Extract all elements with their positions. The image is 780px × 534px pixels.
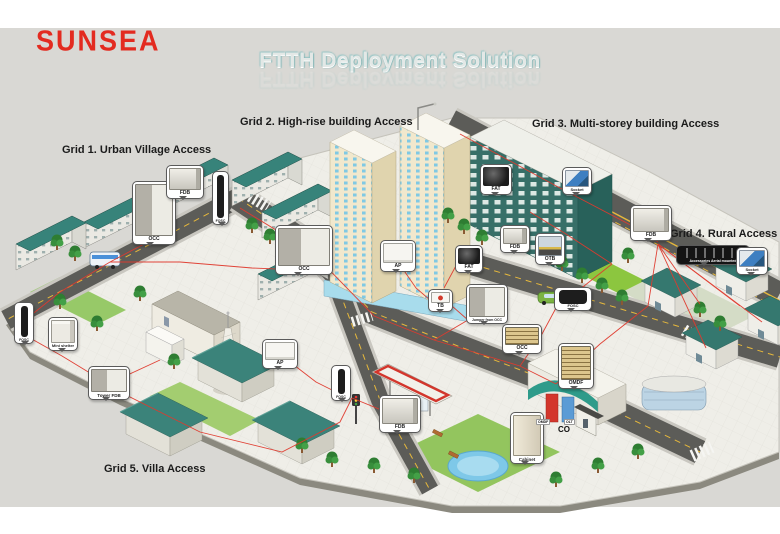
fat-1-label: FAT — [464, 265, 473, 271]
fdb-4-label: FDB — [395, 425, 405, 431]
poster-title-block: FTTH Deployment Solution FTTH Deployment… — [250, 50, 550, 90]
callout-socket-1: Socket — [562, 167, 592, 195]
cabinet-1-label: Cabinet — [519, 457, 536, 462]
jumper-1-label: Jumper from OCC — [472, 318, 502, 322]
aerial-1-label: Accessories Aerial mounted — [690, 259, 737, 263]
otb-1-label: OTB — [545, 257, 556, 263]
fosc-3-label: FOSC — [19, 338, 29, 342]
fdb-3-label: FDB — [646, 233, 656, 239]
callout-ap-2: AP — [262, 339, 298, 369]
scene-label-omdf: OMDF — [536, 419, 550, 425]
callout-socket-2: Socket — [736, 247, 768, 275]
callout-fosc-4: FOSC — [331, 365, 351, 401]
poster-title-reflection: FTTH Deployment Solution — [250, 69, 550, 90]
socket-1-device-image — [565, 170, 589, 187]
mini-shelter-device-image — [51, 320, 75, 343]
occ-2-label: OCC — [298, 267, 309, 273]
socket-1-label: Socket — [570, 188, 583, 193]
callout-otb-1: OTB — [535, 233, 565, 265]
ftth-poster-page: { "logo": { "text": "SUNSEA", "color": "… — [0, 0, 780, 534]
fosc-4-label: FOSC — [336, 395, 346, 399]
callout-ap-1: AP — [380, 240, 416, 272]
callout-mini-shelter: Mini shelter — [48, 317, 78, 351]
grid-label-grid3: Grid 3. Multi-storey building Access — [532, 118, 719, 130]
callout-tower-fdb: Tower FDB — [88, 366, 130, 400]
sunsea-logo: SUNSEA — [36, 25, 161, 58]
tb-1-label: TB — [437, 304, 444, 310]
mini-shelter-label: Mini shelter — [52, 344, 74, 349]
blue-office-building — [642, 376, 706, 410]
tower-fdb-label: Tower FDB — [97, 393, 120, 398]
socket-2-label: Socket — [745, 268, 758, 273]
callout-fat-1: FAT — [455, 245, 483, 273]
ap-1-label: AP — [395, 264, 402, 270]
fat-2-label: FAT — [491, 187, 500, 193]
scene-label-co: CO — [558, 425, 570, 434]
callout-fdb-2: FDB — [500, 225, 530, 253]
callout-fosc-1: FOSC — [212, 171, 229, 225]
occ-2-device-image — [278, 228, 330, 266]
callout-occ-3: OCC — [502, 324, 542, 354]
ap-1-device-image — [383, 243, 413, 263]
omdf-1-label: OMDF — [569, 381, 584, 387]
grid-label-grid1: Grid 1. Urban Village Access — [62, 144, 211, 156]
fdb-2-device-image — [503, 228, 527, 244]
grid-label-grid4: Grid 4. Rural Access — [670, 228, 777, 240]
callout-jumper-1: Jumper from OCC — [466, 284, 508, 324]
scene-label-olt: OLT — [564, 419, 575, 425]
ap-2-label: AP — [277, 361, 284, 367]
otb-1-device-image — [538, 236, 562, 256]
callout-tb-1: TB — [428, 289, 453, 312]
socket-2-device-image — [739, 250, 765, 267]
tower-fdb-device-image — [91, 369, 127, 392]
fosc-2-device-image — [559, 290, 587, 304]
ap-2-device-image — [265, 342, 295, 360]
tb-1-device-image — [431, 292, 450, 303]
fosc-4-device-image — [338, 369, 345, 394]
jumper-1-device-image — [469, 287, 505, 317]
fdb-2-label: FDB — [510, 245, 520, 251]
fat-2-device-image — [483, 167, 509, 186]
occ-3-device-image — [505, 327, 539, 345]
fdb-4-device-image — [382, 398, 418, 424]
fosc-1-label: FOSC — [216, 219, 226, 223]
callout-fdb-4: FDB — [379, 395, 421, 433]
fdb-1-label: FDB — [180, 191, 190, 197]
fdb-3-device-image — [633, 208, 669, 232]
callout-fosc-2: FOSC — [554, 287, 592, 311]
occ-1-label: OCC — [148, 237, 159, 243]
fosc-3-device-image — [21, 306, 28, 337]
callout-occ-2: OCC — [275, 225, 333, 275]
grid-label-grid5: Grid 5. Villa Access — [104, 463, 206, 475]
fat-1-device-image — [458, 248, 480, 264]
fosc-1-device-image — [217, 175, 224, 218]
fdb-1-device-image — [169, 168, 201, 190]
callout-fdb-3: FDB — [630, 205, 672, 241]
callout-fat-2: FAT — [480, 164, 512, 195]
callout-omdf-1: OMDF — [558, 343, 594, 389]
grid-label-grid2: Grid 2. High-rise building Access — [240, 116, 413, 128]
callout-fdb-1: FDB — [166, 165, 204, 199]
callout-fosc-3: FOSC — [14, 302, 34, 344]
occ-3-label: OCC — [516, 346, 527, 352]
fosc-2-label: FOSC — [567, 304, 578, 309]
omdf-1-device-image — [561, 346, 591, 380]
